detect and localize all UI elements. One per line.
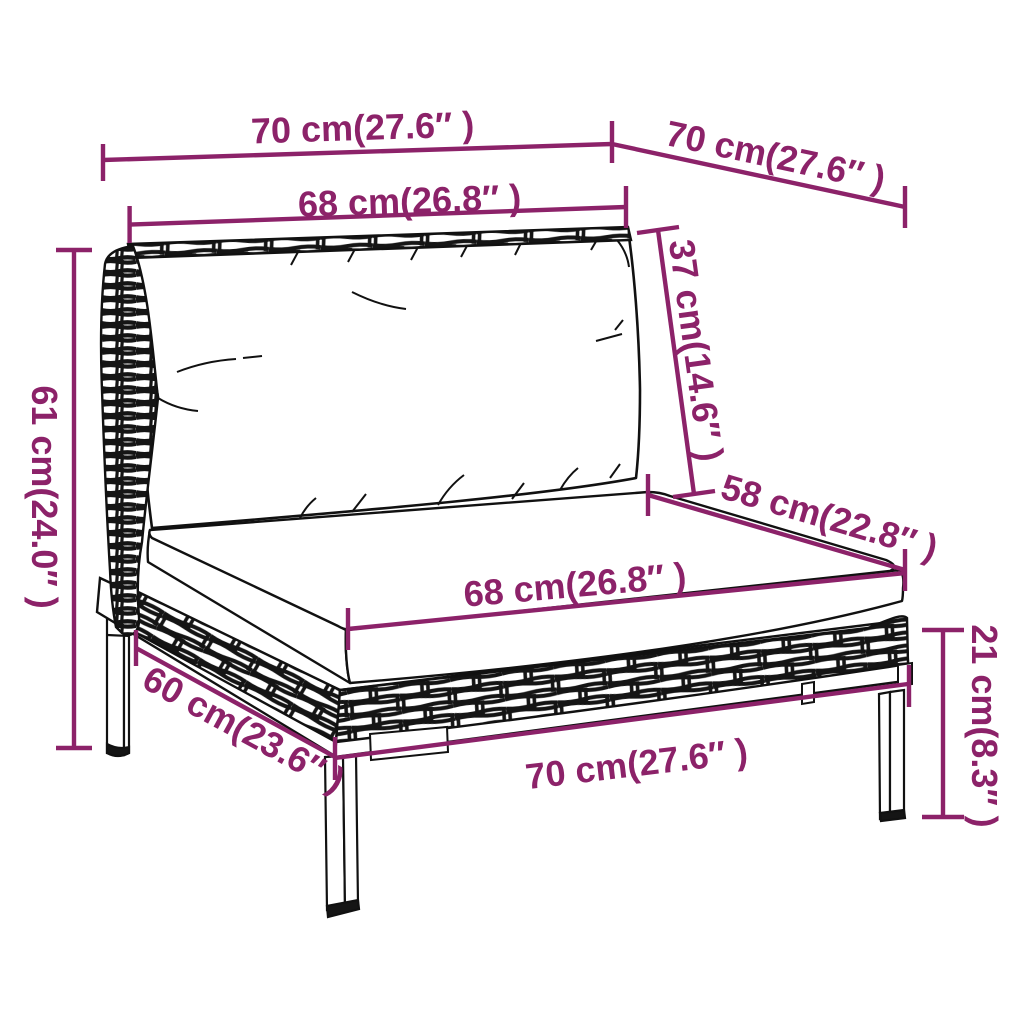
svg-text:61 cm(24.0″ ): 61 cm(24.0″ ): [24, 385, 65, 608]
svg-text:70 cm(27.6″ ): 70 cm(27.6″ ): [250, 104, 475, 152]
svg-text:21 cm(8.3″ ): 21 cm(8.3″ ): [964, 624, 1005, 827]
svg-text:68 cm(26.8″ ): 68 cm(26.8″ ): [297, 176, 522, 224]
